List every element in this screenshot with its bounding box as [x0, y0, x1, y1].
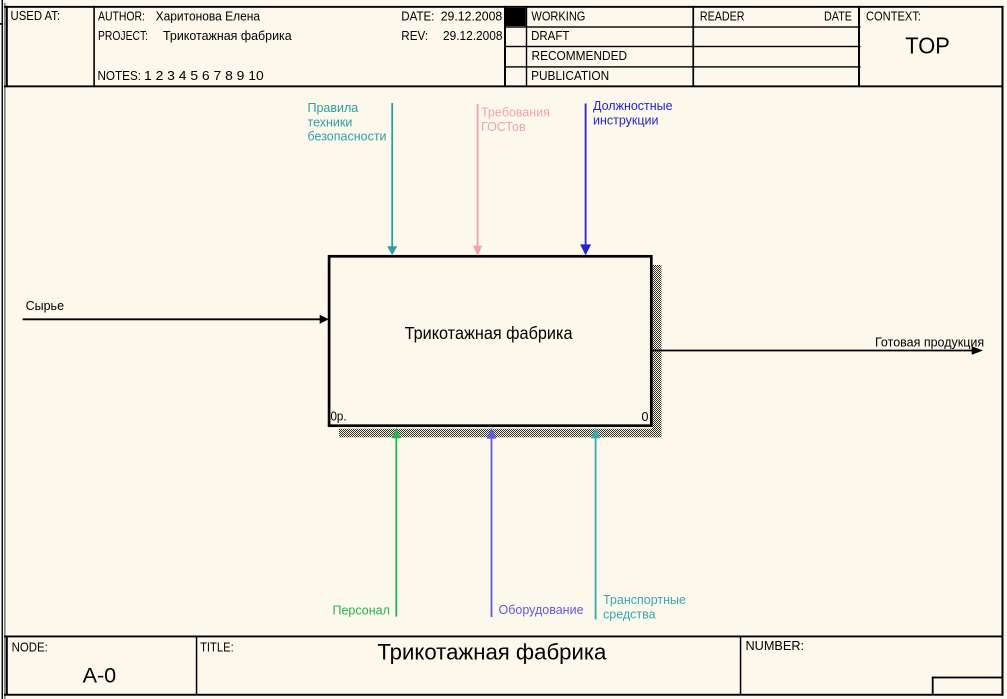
svg-text:DRAFT: DRAFT	[531, 28, 569, 43]
svg-text:CONTEXT:: CONTEXT:	[866, 8, 921, 23]
svg-text:AUTHOR:: AUTHOR:	[98, 8, 145, 23]
svg-text:29.12.2008: 29.12.2008	[441, 8, 503, 23]
svg-text:NODE:: NODE:	[12, 640, 48, 654]
svg-text:0р.: 0р.	[331, 409, 347, 423]
svg-text:Сырье: Сырье	[26, 299, 64, 313]
svg-text:NOTES:: NOTES:	[98, 68, 142, 83]
svg-text:A-0: A-0	[83, 663, 117, 687]
svg-text:USED AT:: USED AT:	[11, 8, 61, 23]
svg-text:Готовая продукция: Готовая продукция	[875, 335, 984, 349]
svg-text:TOP: TOP	[905, 33, 950, 59]
svg-text:TITLE:: TITLE:	[200, 640, 234, 654]
svg-text:DATE:: DATE:	[401, 8, 434, 23]
svg-text:WORKING: WORKING	[531, 8, 585, 23]
svg-text:Персонал: Персонал	[333, 603, 390, 617]
svg-text:DATE: DATE	[824, 8, 852, 23]
svg-text:1 2 3 4 5 6 7 8 9 10: 1 2 3 4 5 6 7 8 9 10	[144, 68, 264, 83]
svg-text:PROJECT:: PROJECT:	[98, 28, 148, 43]
svg-text:RECOMMENDED: RECOMMENDED	[532, 48, 628, 63]
svg-text:Трикотажная фабрика: Трикотажная фабрика	[163, 28, 293, 43]
svg-text:29.12.2008: 29.12.2008	[443, 28, 503, 43]
svg-text:Трикотажная фабрика: Трикотажная фабрика	[377, 639, 607, 664]
svg-text:0: 0	[642, 410, 649, 424]
svg-text:REV:: REV:	[401, 28, 428, 43]
svg-text:Харитонова Елена: Харитонова Елена	[156, 8, 261, 23]
svg-text:Трикотажная фабрика: Трикотажная фабрика	[405, 323, 573, 343]
svg-text:READER: READER	[700, 8, 745, 23]
svg-text:Оборудование: Оборудование	[499, 603, 584, 617]
svg-text:NUMBER:: NUMBER:	[746, 639, 805, 653]
svg-text:PUBLICATION: PUBLICATION	[531, 68, 609, 83]
